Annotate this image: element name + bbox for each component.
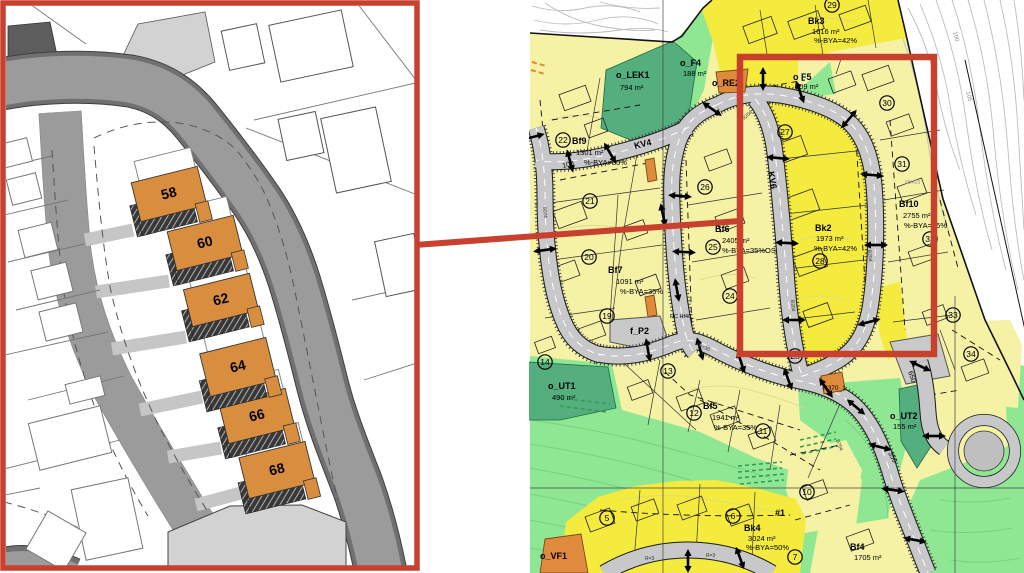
svg-text:27: 27 bbox=[780, 127, 790, 137]
svg-text:H370_1: H370_1 bbox=[823, 385, 846, 392]
svg-text:19: 19 bbox=[602, 311, 612, 321]
svg-text:2755 m²: 2755 m² bbox=[903, 211, 931, 220]
svg-text:22: 22 bbox=[558, 135, 568, 145]
svg-text:188 m²: 188 m² bbox=[683, 69, 707, 78]
svg-text:o_F4: o_F4 bbox=[680, 58, 701, 68]
svg-text:24: 24 bbox=[725, 291, 735, 301]
svg-text:1973 m²: 1973 m² bbox=[816, 234, 844, 243]
svg-text:68/429: 68/429 bbox=[905, 180, 921, 186]
svg-text:Bf10: Bf10 bbox=[899, 199, 919, 209]
svg-text:9074: 9074 bbox=[541, 207, 548, 219]
svg-text:29: 29 bbox=[827, 0, 837, 10]
svg-text:11: 11 bbox=[759, 426, 768, 436]
svg-text:1616 m²: 1616 m² bbox=[812, 27, 840, 36]
svg-text:%-BYA=35%OS: %-BYA=35%OS bbox=[722, 246, 776, 255]
svg-text:25: 25 bbox=[708, 242, 718, 252]
svg-text:o_UT1: o_UT1 bbox=[548, 381, 576, 391]
svg-text:21: 21 bbox=[585, 196, 595, 206]
svg-text:33: 33 bbox=[948, 310, 958, 320]
svg-text:13: 13 bbox=[663, 366, 673, 376]
svg-text:12: 12 bbox=[689, 408, 699, 418]
svg-text:490 m²: 490 m² bbox=[552, 393, 576, 402]
svg-text:Bf9: Bf9 bbox=[572, 136, 587, 146]
svg-text:R=3: R=3 bbox=[706, 553, 716, 559]
svg-text:%-BYA=42%: %-BYA=42% bbox=[814, 244, 857, 253]
svg-text:o_LEK1: o_LEK1 bbox=[616, 70, 650, 80]
svg-text:Bf5: Bf5 bbox=[703, 401, 718, 411]
svg-text:14: 14 bbox=[540, 357, 550, 367]
svg-text:34: 34 bbox=[966, 349, 976, 359]
svg-text:Bf7: Bf7 bbox=[608, 265, 623, 275]
svg-text:2405 m²: 2405 m² bbox=[722, 236, 750, 245]
svg-text:3024 m²: 3024 m² bbox=[748, 534, 776, 543]
svg-text:1301 m²: 1301 m² bbox=[576, 148, 604, 157]
svg-text:Bk3: Bk3 bbox=[808, 16, 825, 26]
svg-text:31: 31 bbox=[897, 159, 907, 169]
svg-text:HC Hf40_: HC Hf40_ bbox=[670, 314, 695, 320]
svg-text:20: 20 bbox=[584, 252, 594, 262]
svg-text:7: 7 bbox=[793, 552, 798, 562]
svg-text:155 m²: 155 m² bbox=[893, 422, 917, 431]
svg-text:5: 5 bbox=[605, 513, 610, 523]
svg-text:%-BYA=35%: %-BYA=35% bbox=[620, 287, 663, 296]
svg-text:B204: B204 bbox=[789, 300, 796, 312]
svg-text:%-BYA=35%: %-BYA=35% bbox=[904, 221, 947, 230]
svg-text:o_UT2: o_UT2 bbox=[890, 411, 918, 421]
svg-text:%-BYA=50%: %-BYA=50% bbox=[746, 543, 789, 552]
svg-text:o F5: o F5 bbox=[793, 72, 812, 82]
svg-text:30: 30 bbox=[882, 98, 892, 108]
svg-text:209 m²: 209 m² bbox=[795, 82, 819, 91]
svg-text:6: 6 bbox=[731, 511, 736, 521]
svg-text:28: 28 bbox=[815, 256, 825, 266]
svg-text:R=3: R=3 bbox=[645, 556, 655, 562]
svg-text:#1: #1 bbox=[775, 508, 785, 518]
svg-text:o_RE2: o_RE2 bbox=[712, 78, 740, 88]
svg-text:1091 m²: 1091 m² bbox=[616, 277, 644, 286]
svg-text:794 m²: 794 m² bbox=[620, 83, 644, 92]
svg-text:Bk4: Bk4 bbox=[744, 523, 761, 533]
svg-text:Bk2: Bk2 bbox=[815, 223, 832, 233]
svg-text:%-BYA=42%: %-BYA=42% bbox=[814, 36, 857, 45]
svg-text:%-BYA=35%: %-BYA=35% bbox=[714, 423, 757, 432]
svg-text:%-BYA=35%: %-BYA=35% bbox=[584, 158, 627, 167]
svg-text:f_P2: f_P2 bbox=[630, 326, 649, 336]
svg-text:1941 m²: 1941 m² bbox=[712, 413, 740, 422]
svg-text:o_VF1: o_VF1 bbox=[540, 551, 567, 561]
svg-text:26: 26 bbox=[700, 182, 710, 192]
svg-text:B204: B204 bbox=[866, 250, 873, 262]
svg-text:10: 10 bbox=[802, 487, 812, 497]
svg-text:1705 m²: 1705 m² bbox=[854, 553, 882, 562]
svg-text:Bf4: Bf4 bbox=[850, 542, 865, 552]
